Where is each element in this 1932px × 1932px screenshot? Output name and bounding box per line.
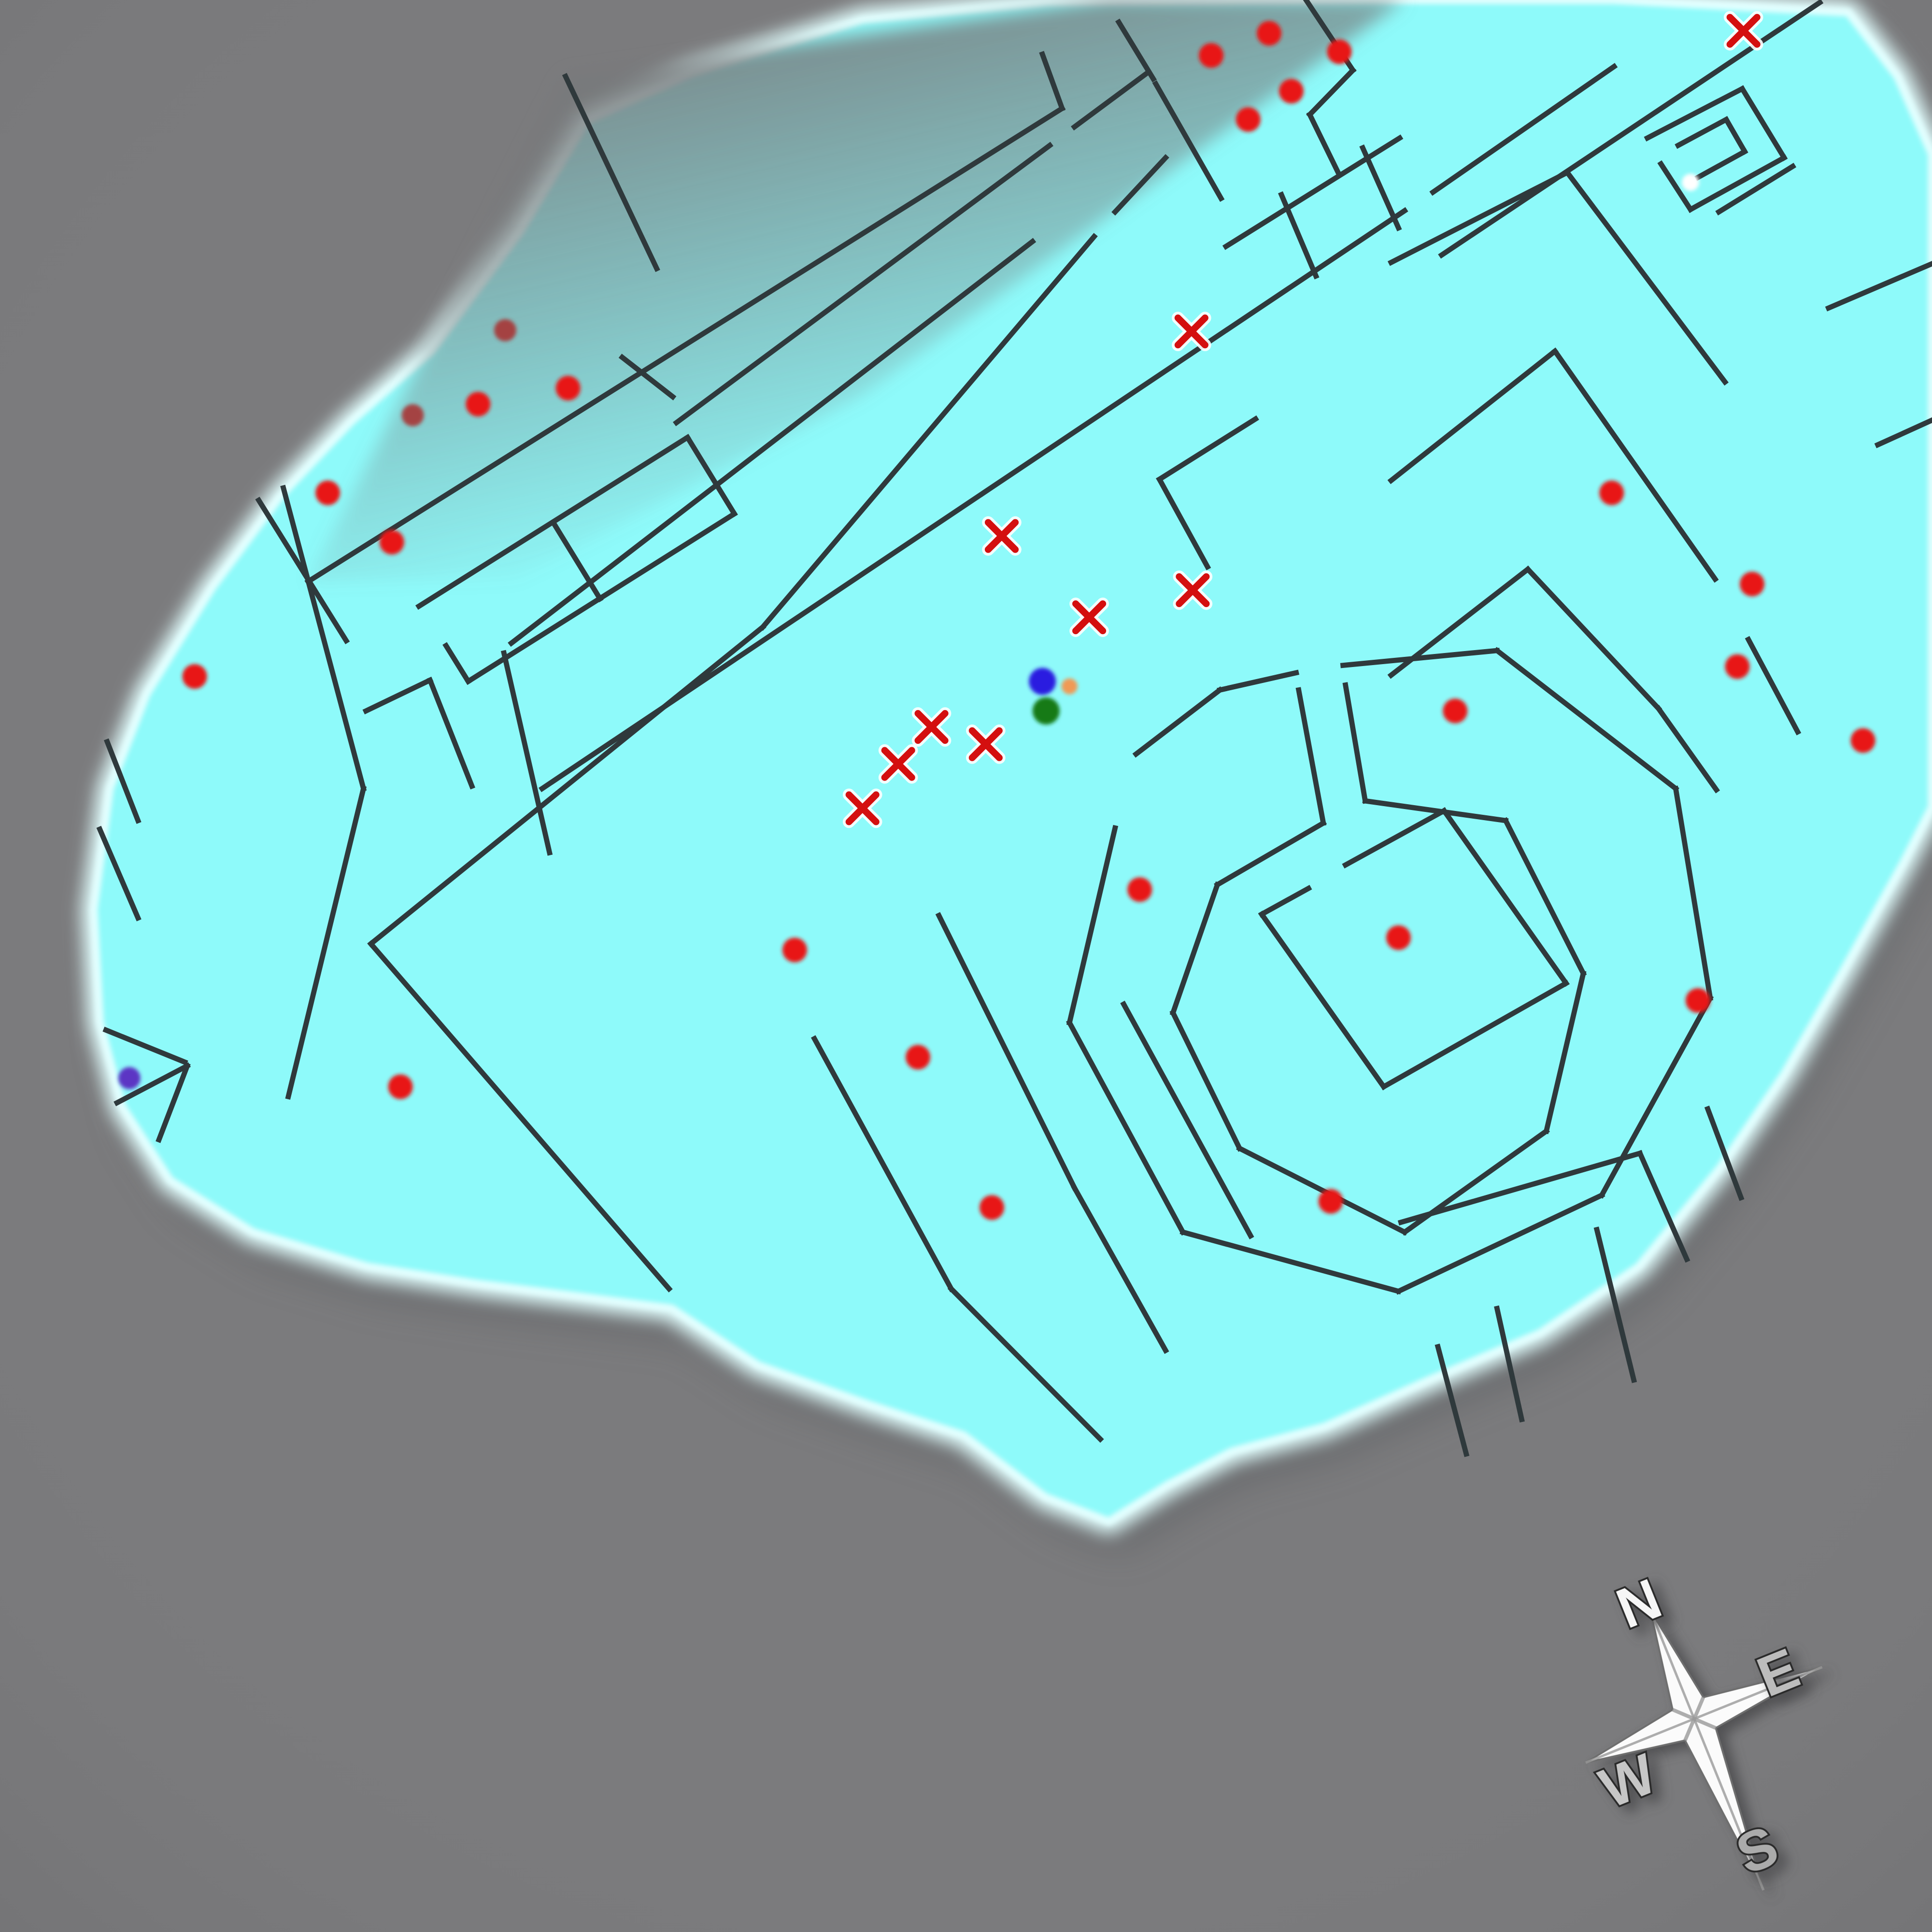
- npc-red-dot: [1127, 877, 1152, 902]
- npc-red-dot: [1740, 572, 1764, 597]
- npc-red-dot-shaded: [494, 319, 516, 341]
- npc-red-dot: [388, 1074, 413, 1099]
- npc-red-dot: [1319, 1189, 1343, 1214]
- npc-red-dot: [380, 530, 404, 554]
- blue-dot: [1029, 668, 1056, 695]
- npc-red-dot: [1686, 988, 1710, 1013]
- npc-red-dot: [556, 376, 581, 400]
- npc-red-dot: [466, 392, 490, 416]
- npc-red-dot: [980, 1195, 1004, 1220]
- npc-red-dot: [1279, 79, 1304, 103]
- npc-red-dot-shaded: [402, 404, 424, 426]
- npc-red-dot: [1386, 925, 1411, 950]
- green-dot: [1033, 697, 1060, 724]
- dungeon-map-viewport[interactable]: N E W S: [0, 0, 1932, 1932]
- npc-red-dot: [1851, 728, 1875, 753]
- npc-red-dot: [1443, 698, 1467, 723]
- npc-red-dot: [782, 938, 807, 962]
- npc-red-dot: [1257, 21, 1281, 45]
- npc-red-dot: [1236, 107, 1261, 132]
- map-canvas[interactable]: N E W S: [0, 0, 1932, 1932]
- npc-red-dot: [1599, 481, 1624, 505]
- npc-red-dot: [1199, 43, 1223, 68]
- npc-red-dot: [1327, 40, 1351, 64]
- npc-red-dot: [183, 664, 207, 689]
- orange-dot: [1062, 678, 1078, 694]
- npc-red-dot: [906, 1045, 930, 1069]
- npc-red-dot: [1725, 654, 1749, 679]
- white-dot: [1682, 174, 1699, 191]
- npc-red-dot: [315, 481, 340, 505]
- purple-dot: [118, 1067, 141, 1089]
